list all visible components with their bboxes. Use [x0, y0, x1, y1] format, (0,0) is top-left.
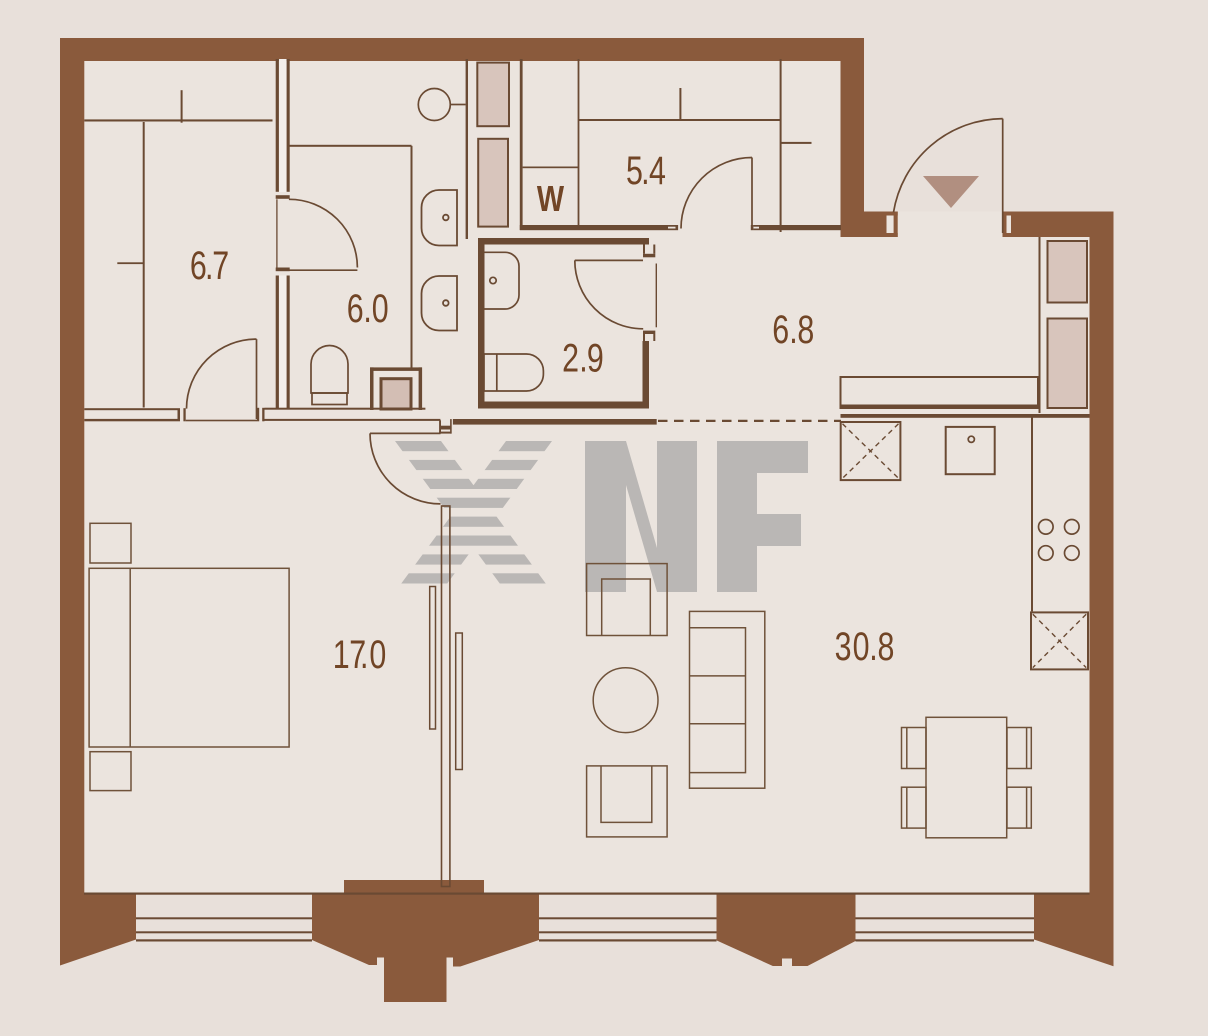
- svg-text:.: .: [789, 307, 797, 352]
- svg-text:W: W: [537, 178, 564, 219]
- svg-text:6: 6: [347, 286, 364, 331]
- svg-text:.: .: [869, 624, 877, 669]
- svg-text:8: 8: [797, 307, 814, 352]
- svg-text:0: 0: [369, 632, 386, 677]
- svg-text:8: 8: [877, 624, 894, 669]
- svg-text:.: .: [360, 632, 368, 677]
- svg-text:7: 7: [212, 243, 229, 288]
- svg-text:3: 3: [835, 624, 852, 669]
- svg-text:1: 1: [333, 632, 350, 677]
- svg-text:9: 9: [587, 335, 604, 380]
- svg-text:.: .: [363, 286, 371, 331]
- svg-text:5: 5: [626, 148, 643, 193]
- svg-text:6: 6: [772, 307, 789, 352]
- svg-text:6: 6: [190, 243, 207, 288]
- svg-text:2: 2: [562, 335, 579, 380]
- svg-text:0: 0: [853, 624, 870, 669]
- svg-text:0: 0: [372, 286, 389, 331]
- svg-text:4: 4: [649, 148, 666, 193]
